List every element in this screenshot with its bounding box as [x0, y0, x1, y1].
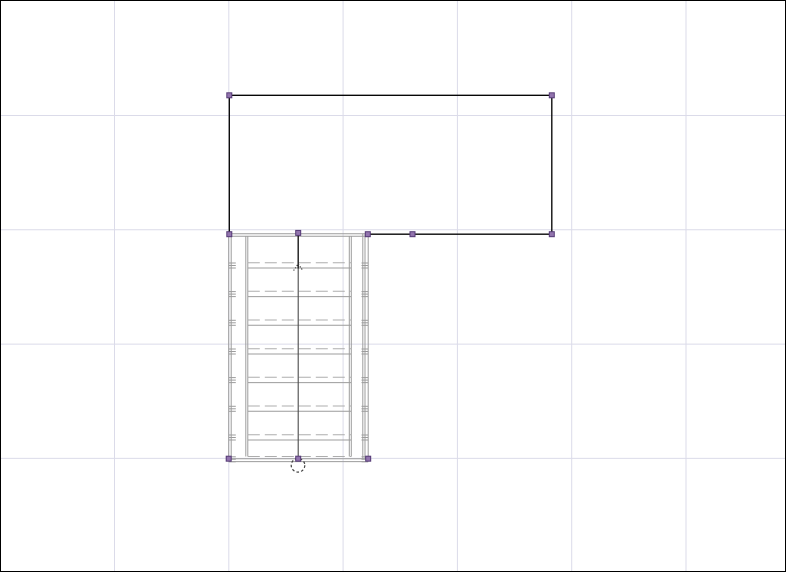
selection-handle[interactable] — [549, 93, 554, 98]
selection-handle[interactable] — [365, 232, 370, 237]
plan-editor-window — [0, 0, 786, 572]
grid-layer — [0, 0, 786, 572]
selection-handle[interactable] — [410, 232, 415, 237]
plan-canvas[interactable] — [0, 0, 786, 572]
selection-handle[interactable] — [227, 232, 232, 237]
canvas-border — [1, 1, 786, 572]
selection-handle[interactable] — [549, 232, 554, 237]
stair-direction-arrow[interactable] — [291, 233, 305, 472]
selection-handle[interactable] — [296, 230, 301, 235]
selection-handle[interactable] — [226, 456, 231, 461]
room-walls[interactable] — [229, 95, 552, 234]
selection-handle[interactable] — [296, 456, 301, 461]
selection-handle[interactable] — [227, 93, 232, 98]
selection-handle[interactable] — [366, 456, 371, 461]
